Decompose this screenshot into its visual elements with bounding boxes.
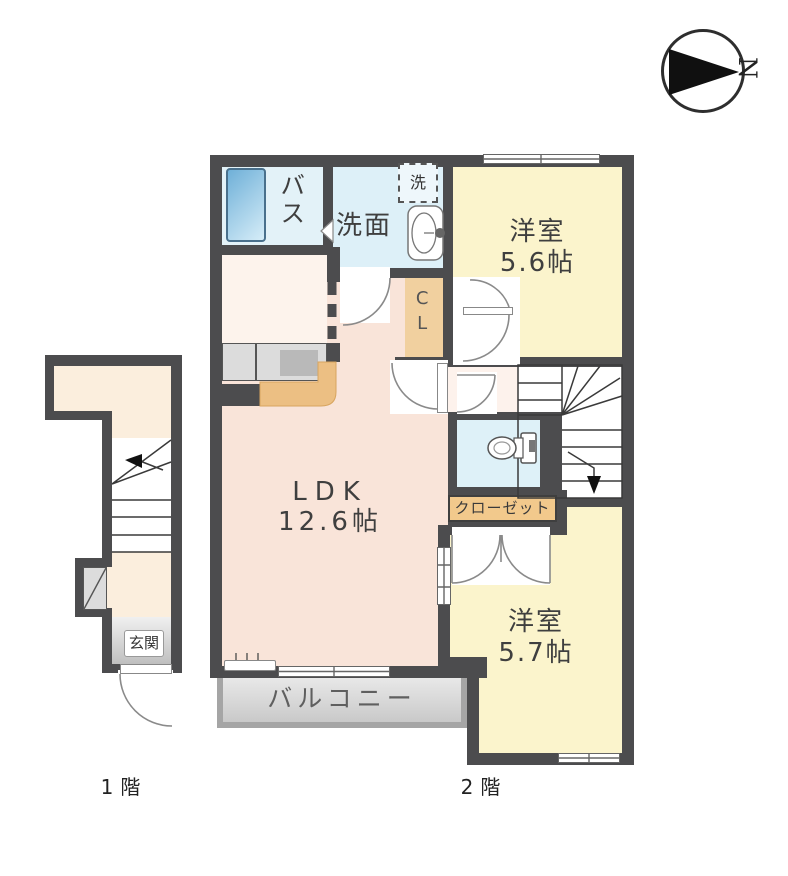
wall [327, 247, 340, 282]
door-opening [343, 268, 390, 278]
bedroom-56-name: 洋室 [453, 218, 622, 248]
wall [222, 245, 333, 255]
wall [102, 411, 112, 558]
washing-machine-icon: 洗 [398, 163, 438, 203]
closet-cl-label: CL [411, 288, 432, 338]
wall [171, 355, 182, 673]
door-leaf [463, 307, 513, 315]
entrance-tag: 玄関 [124, 630, 164, 657]
sliding-door-balcony [278, 666, 390, 677]
hall-1f [54, 364, 171, 411]
door-swing-area [457, 372, 497, 414]
stairs-1f-bg [112, 438, 171, 552]
wall [622, 155, 634, 765]
wall [562, 498, 634, 507]
room-toilet [457, 420, 540, 487]
bedroom-56-size: 5.6帖 [453, 249, 622, 279]
door-leaf [437, 363, 448, 413]
wall [327, 343, 340, 362]
wall [210, 155, 222, 678]
bedroom-57-name: 洋室 [450, 608, 622, 638]
kitchen-counter-divider [255, 343, 257, 381]
door-swing-area [118, 670, 173, 726]
wall [210, 384, 260, 406]
window [483, 154, 600, 164]
door-swing-area [453, 277, 520, 365]
floor2-caption: 2階 [430, 776, 538, 799]
floor1-caption: 1階 [70, 776, 178, 799]
bathtub-icon [226, 168, 266, 242]
closet-bar: クローゼット [448, 495, 557, 522]
wall [443, 268, 453, 357]
floor-plan: 洗 クローゼット N [0, 0, 788, 876]
wall [443, 155, 453, 268]
window [437, 547, 451, 605]
door-swing-area [452, 527, 550, 585]
shoe-cabinet-icon [83, 567, 107, 610]
wall [323, 163, 333, 250]
wall [540, 412, 562, 498]
wall [448, 420, 457, 495]
kitchen-nook [222, 250, 327, 343]
bedroom-57-size: 5.7帖 [450, 639, 622, 669]
ldk-size: 12.6帖 [222, 508, 438, 538]
bath-label: バス [276, 172, 305, 228]
closet-label: クローゼット [454, 500, 550, 517]
wall [45, 355, 182, 366]
door-leaf [120, 664, 172, 674]
ldk-name: LDK [222, 478, 438, 508]
washroom-label: 洗面 [336, 212, 392, 242]
entrance-label: 玄関 [129, 635, 159, 652]
balcony-label: バルコニー [217, 685, 467, 714]
washer-label: 洗 [410, 174, 426, 192]
kitchen-sink [280, 350, 318, 376]
compass-north-label: N [733, 57, 761, 85]
window [558, 753, 620, 763]
counter-fixture [224, 660, 276, 671]
